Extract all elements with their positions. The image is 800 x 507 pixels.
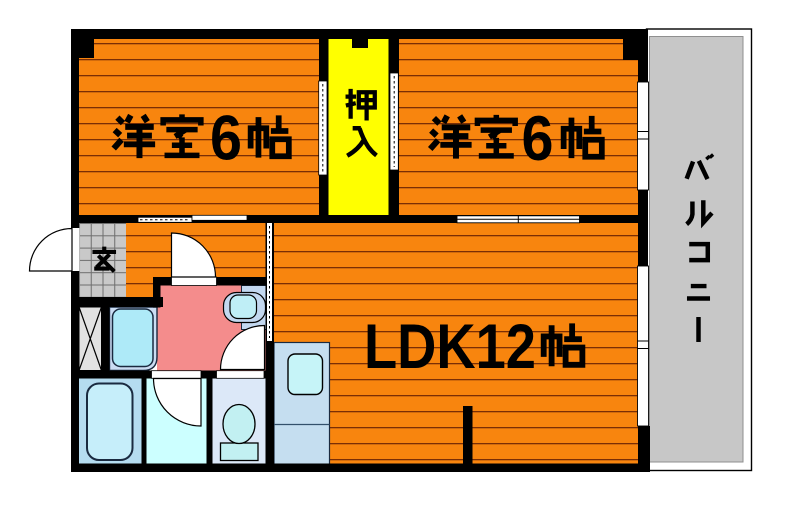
svg-text:6: 6 xyxy=(522,104,554,174)
svg-text:LDK12: LDK12 xyxy=(364,312,536,382)
svg-text:6: 6 xyxy=(210,104,242,174)
